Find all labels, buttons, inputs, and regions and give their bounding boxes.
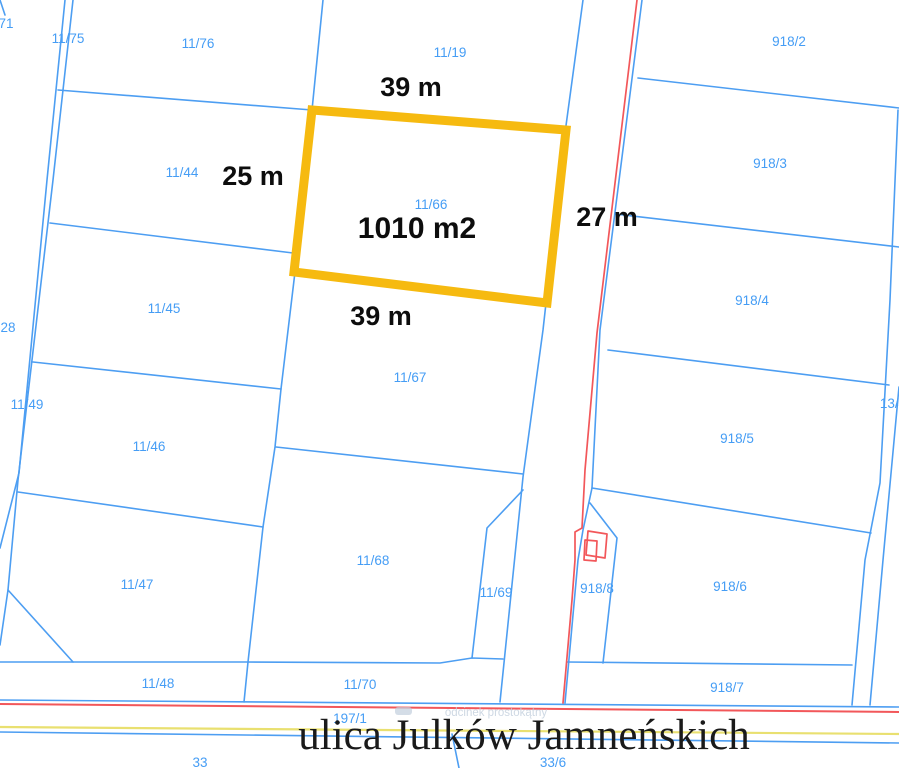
parcel-label: 13/4 — [880, 396, 899, 411]
map-line-boundary-918-2-3 — [638, 78, 899, 108]
boundary-lines-layer — [0, 0, 899, 768]
parcel-label: 11/67 — [394, 370, 427, 385]
map-line-boundary-44-45 — [50, 223, 293, 253]
parcel-label: 11/76 — [182, 36, 215, 51]
map-line-boundary-918-5-6 — [592, 488, 871, 533]
parcel-label: 918/3 — [753, 156, 787, 171]
dimension-label: 39 m — [350, 301, 412, 331]
parcel-label: 11/48 — [142, 676, 175, 691]
street-name-label: ulica Julków Jamneńskich — [298, 712, 749, 759]
map-line-boundary-46-47 — [18, 492, 263, 527]
parcel-label: 33 — [192, 755, 207, 768]
map-line-left-road-west-edge — [0, 0, 65, 548]
map-line-boundary-918-3-4 — [615, 214, 899, 247]
map-line-boundary-47-48-70 — [0, 658, 503, 663]
parcel-label: 918/4 — [735, 293, 769, 308]
dimension-label: 27 m — [576, 202, 638, 232]
parcel-label: 11/75 — [52, 31, 85, 46]
map-line-boundary-45-46 — [33, 362, 281, 389]
cadastral-map: 7111/7511/7611/19918/2918/311/4411/45289… — [0, 0, 899, 768]
parcel-label: 11/68 — [357, 553, 390, 568]
cadastral-map-canvas: 7111/7511/7611/19918/2918/311/4411/45289… — [0, 0, 899, 768]
street-layer: odcinek prostokątnyulica Julków Jamneńsk… — [298, 707, 749, 759]
parcel-labels-layer: 7111/7511/7611/19918/2918/311/4411/45289… — [0, 16, 899, 768]
parcel-label: 11/47 — [121, 577, 154, 592]
parcel-label: 11/45 — [148, 301, 181, 316]
map-line-boundary-75-44 — [58, 90, 312, 110]
map-line-east-strip-east-edge — [870, 387, 899, 705]
dimension-label: 25 m — [222, 161, 284, 191]
parcel-label: 11/44 — [166, 165, 199, 180]
map-line-boundary-67-68 — [276, 447, 523, 474]
parcel-area-label: 1010 m2 — [358, 212, 476, 245]
parcel-label: 918/8 — [580, 581, 614, 596]
parcel-label: 28 — [0, 320, 15, 335]
map-line-top-left-corner-fragment — [0, 0, 5, 15]
parcel-label: 11/49 — [11, 397, 44, 412]
parcel-label: 11/69 — [480, 585, 513, 600]
parcel-label: 11/46 — [133, 439, 166, 454]
parcel-label: 11/70 — [344, 677, 377, 692]
parcel-label: 918/2 — [772, 34, 806, 49]
map-line-parcel-47-diagonal — [8, 590, 73, 662]
parcel-label: 918/6 — [713, 579, 747, 594]
parcel-label: 71 — [0, 16, 14, 31]
highlight-parcel-number: 11/66 — [415, 197, 448, 212]
dimension-label: 39 m — [380, 72, 442, 102]
parcel-label: 11/19 — [434, 45, 467, 60]
parcel-label: 918/7 — [710, 680, 744, 695]
map-line-road-west-edge — [500, 0, 583, 702]
map-line-boundary-918-6-7 — [567, 662, 852, 665]
map-line-parcel-69-west-edge — [472, 490, 523, 658]
map-line-road-east-edge — [565, 0, 642, 703]
parcel-label: 918/5 — [720, 431, 754, 446]
map-line-boundary-918-4-5 — [608, 350, 889, 385]
